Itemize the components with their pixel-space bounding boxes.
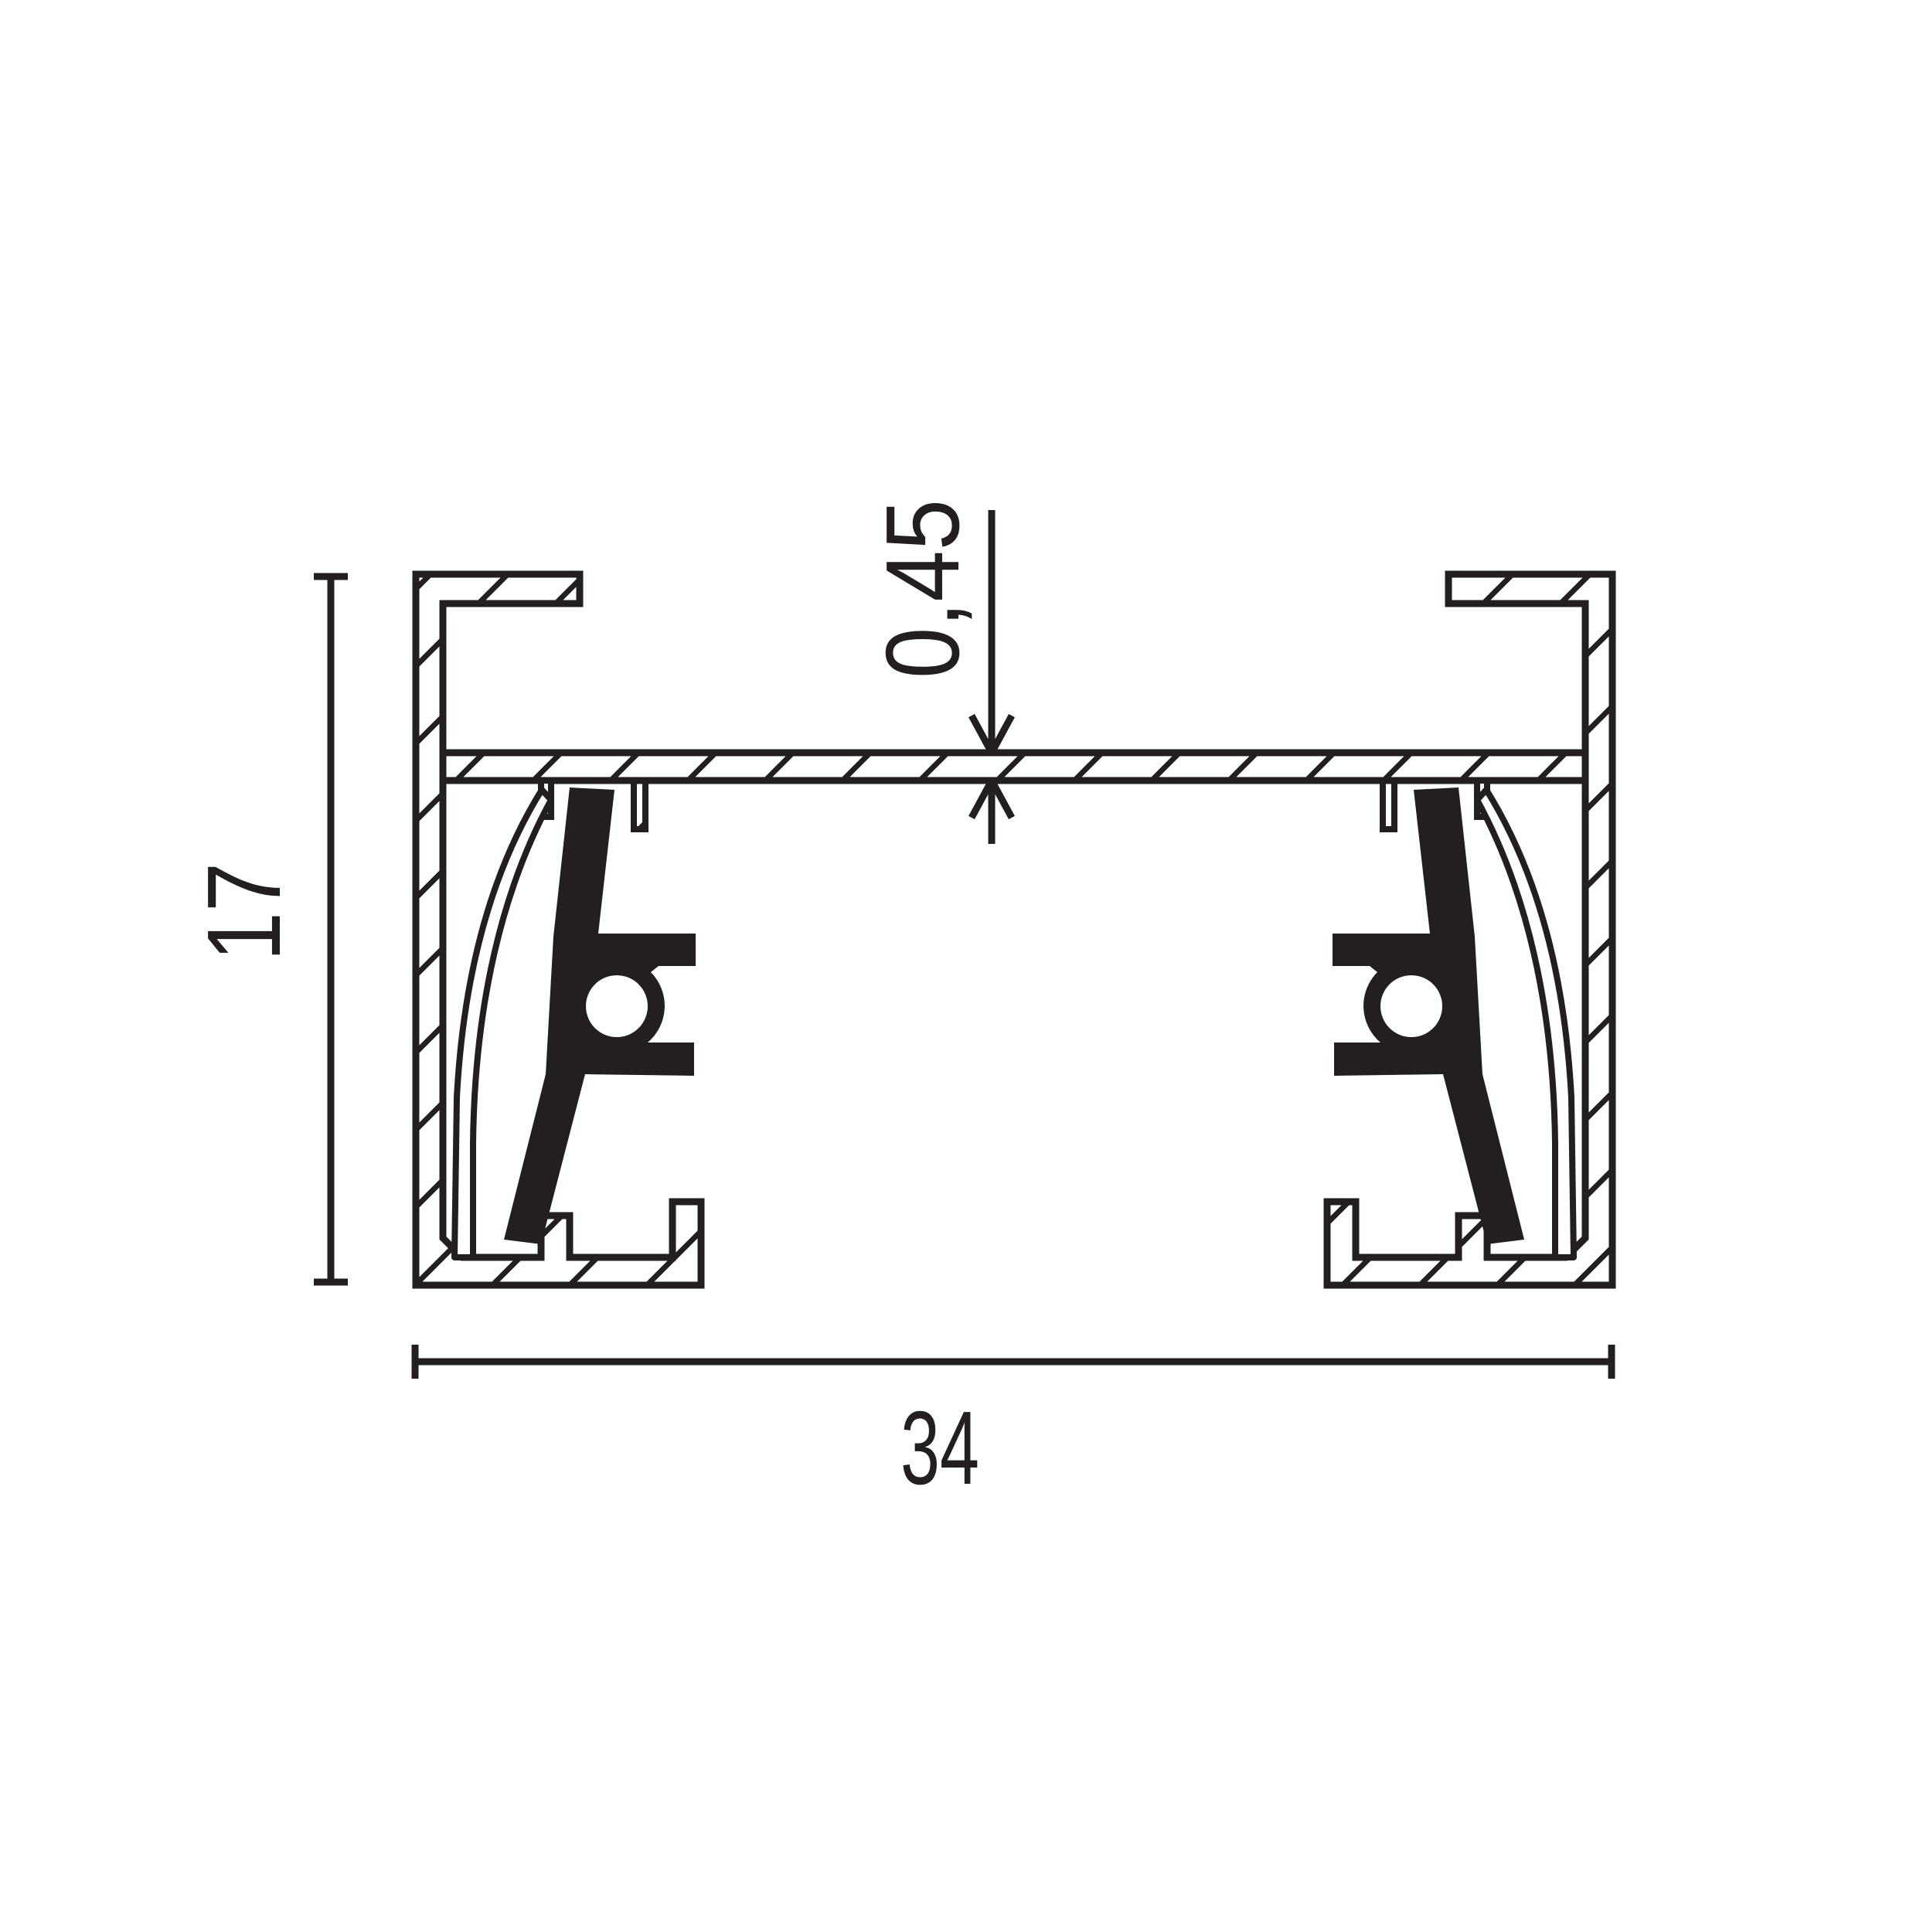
profile-technical-drawing: 17 34 0,45 bbox=[0, 0, 1930, 1932]
top-plate-web bbox=[443, 753, 1585, 781]
plate-rib-left-inner bbox=[634, 781, 645, 829]
conductor-left bbox=[504, 787, 696, 1244]
dimension-height-17 bbox=[314, 577, 348, 1282]
conductor-right bbox=[1333, 787, 1524, 1244]
conductor-left-wire-hole bbox=[586, 975, 648, 1037]
plate-rib-right-inner bbox=[1383, 781, 1394, 829]
drawing-canvas: 17 34 0,45 bbox=[0, 0, 1930, 1932]
dim-17-label: 17 bbox=[186, 862, 302, 961]
dimension-width-34 bbox=[415, 1345, 1612, 1379]
dim-34-label: 34 bbox=[900, 1389, 979, 1506]
dim-045-label: 0,45 bbox=[864, 499, 981, 679]
conductor-right-wire-hole bbox=[1380, 975, 1442, 1037]
